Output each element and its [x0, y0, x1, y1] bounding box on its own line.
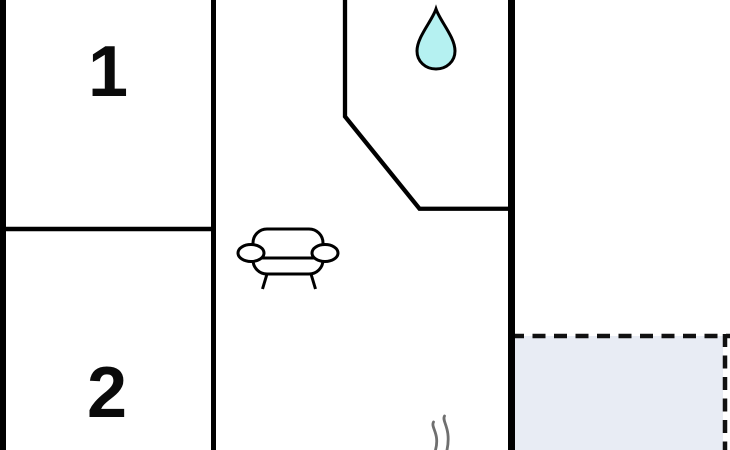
room-2-label: 2: [87, 357, 127, 429]
sofa-leg-left: [263, 274, 268, 289]
terrace-area: [511, 334, 730, 450]
water-drop-icon: [417, 9, 455, 69]
exterior-wall-left: [0, 0, 6, 450]
room-1-label: 1: [88, 36, 128, 108]
sofa-armrest-left: [238, 245, 264, 262]
steam-wave-left: [433, 422, 437, 450]
sofa-armrest-right: [312, 245, 338, 262]
steam-wave-right: [444, 416, 448, 450]
sofa-icon: [238, 229, 338, 289]
exterior-wall-right: [508, 0, 515, 450]
floorplan: 1 2: [0, 0, 730, 450]
steam-icon: [433, 416, 448, 450]
sofa-leg-right: [311, 274, 316, 289]
terrace-fill: [513, 336, 723, 450]
